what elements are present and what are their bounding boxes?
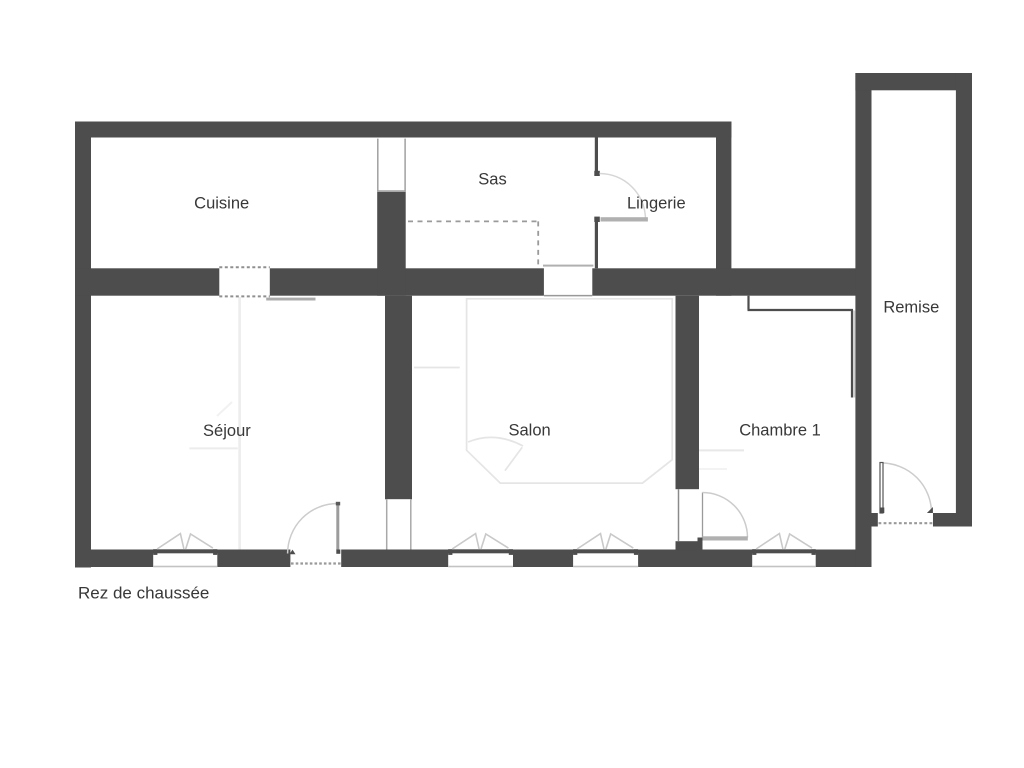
svg-text:Lingerie: Lingerie	[627, 195, 686, 213]
svg-text:Séjour: Séjour	[203, 422, 251, 440]
svg-text:Cuisine: Cuisine	[194, 195, 249, 213]
svg-text:Salon: Salon	[508, 422, 550, 440]
svg-text:Chambre 1: Chambre 1	[739, 422, 821, 440]
svg-text:Sas: Sas	[478, 171, 506, 189]
svg-text:Remise: Remise	[883, 299, 939, 317]
svg-text:Rez de chaussée: Rez de chaussée	[78, 584, 209, 603]
